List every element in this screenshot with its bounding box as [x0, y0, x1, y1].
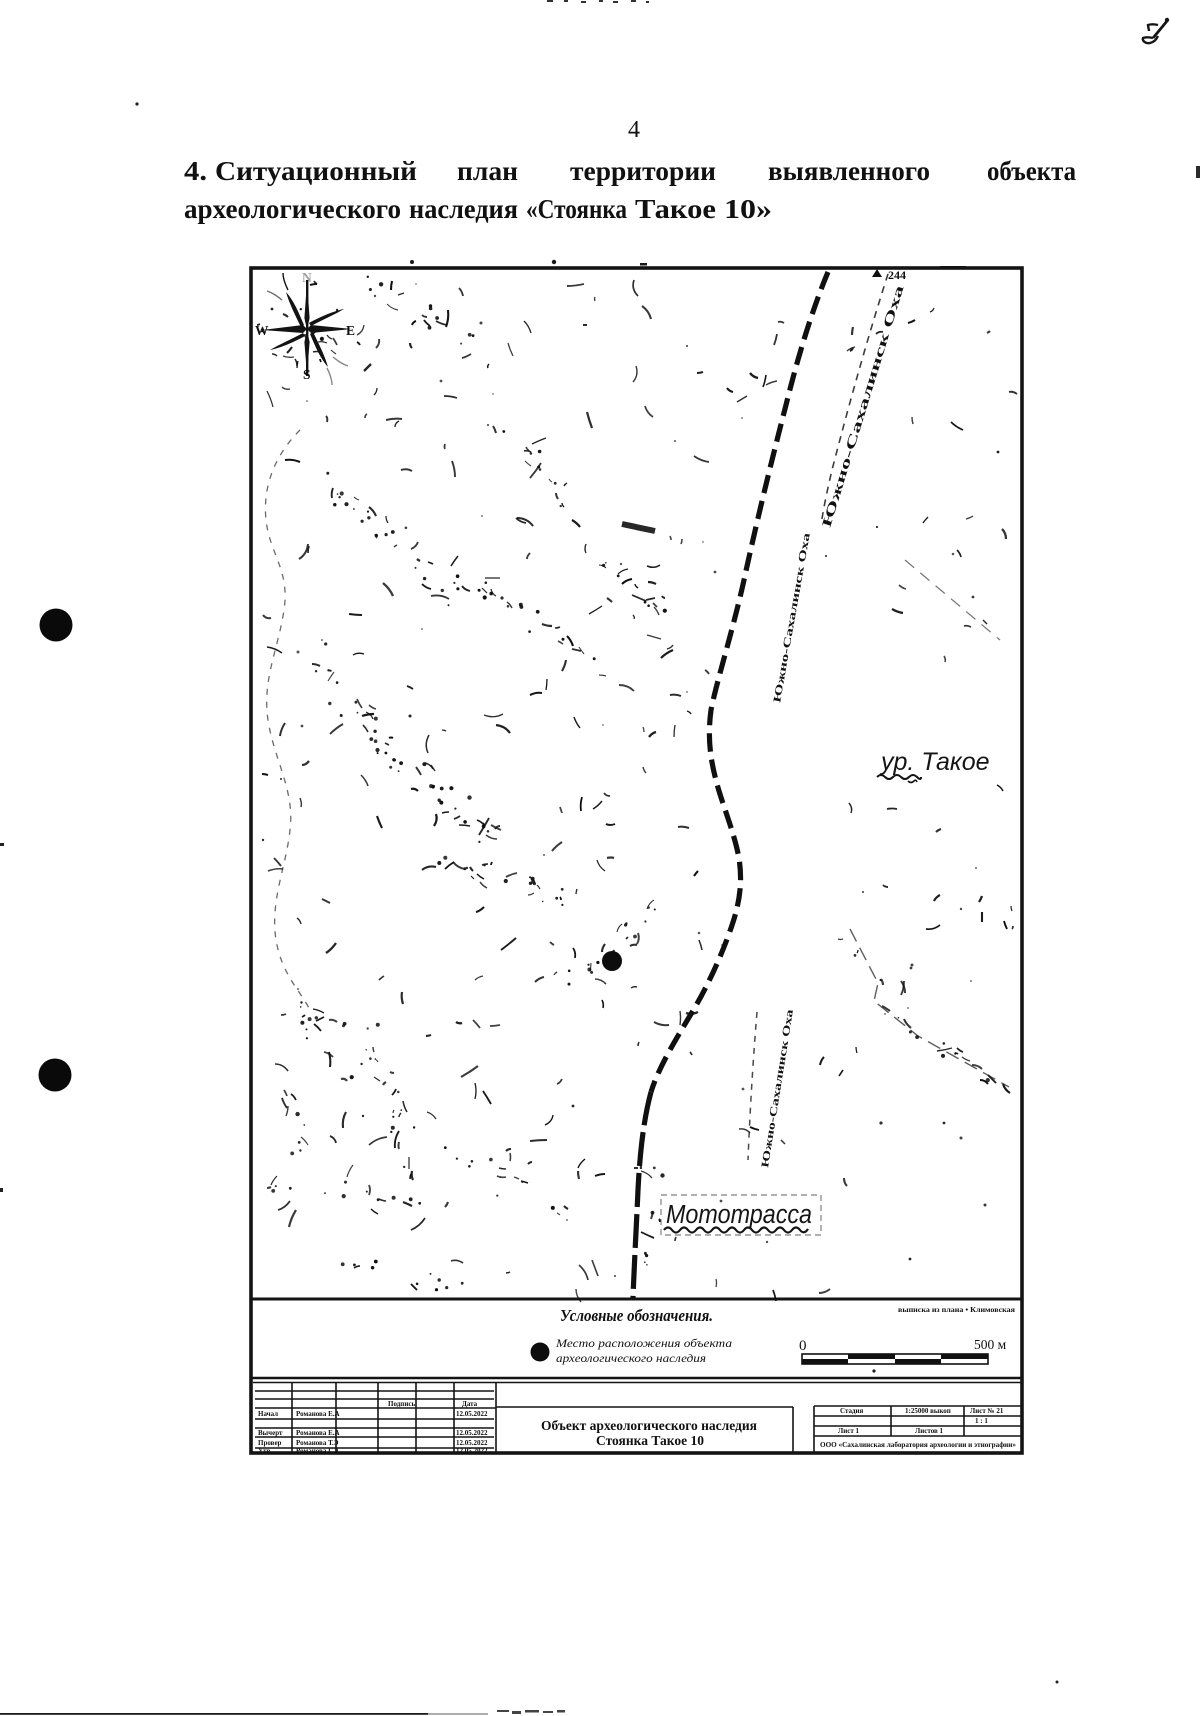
svg-text:ООО «Сахалинская лаборатория а: ООО «Сахалинская лаборатория археологии … [820, 1441, 1017, 1449]
svg-text:4.: 4. [184, 156, 207, 186]
svg-text:археологического: археологического [184, 194, 401, 224]
svg-text:Дата: Дата [462, 1400, 478, 1408]
svg-text:Ситуационный: Ситуационный [215, 156, 417, 186]
svg-text:S: S [303, 367, 311, 382]
svg-text:4: 4 [628, 117, 640, 143]
svg-text:Объект археологического наслед: Объект археологического наследия [541, 1418, 757, 1433]
svg-text:Стадия: Стадия [840, 1407, 864, 1415]
svg-text:Южно-Сахалинск Оха: Южно-Сахалинск Оха [819, 283, 907, 529]
svg-text:1 : 1: 1 : 1 [975, 1417, 988, 1425]
svg-text:Начал: Начал [258, 1410, 278, 1418]
svg-text:1:25000 выкоп: 1:25000 выкоп [905, 1407, 951, 1415]
svg-text:территории: территории [570, 156, 716, 186]
svg-text:10»: 10» [724, 194, 772, 224]
svg-text:Романова Т.Э: Романова Т.Э [296, 1439, 339, 1447]
svg-text:Вычерт: Вычерт [258, 1429, 283, 1437]
svg-text:Лист № 21: Лист № 21 [970, 1407, 1004, 1415]
svg-text:«Стоянка: «Стоянка [526, 194, 627, 224]
svg-text:ур. Такое: ур. Такое [879, 748, 990, 776]
svg-text:Листов 1: Листов 1 [915, 1427, 944, 1435]
svg-text:12.05.2022: 12.05.2022 [456, 1447, 488, 1455]
svg-text:244: 244 [888, 268, 906, 282]
svg-text:Романова Е.А: Романова Е.А [296, 1410, 340, 1418]
svg-text:Такое: Такое [635, 194, 716, 224]
svg-text:0: 0 [799, 1338, 807, 1354]
svg-text:Лист 1: Лист 1 [838, 1427, 860, 1435]
svg-text:Романова Г.Э: Романова Г.Э [296, 1447, 338, 1455]
svg-text:выписка из плана • Климовская: выписка из плана • Климовская [898, 1305, 1015, 1314]
svg-text:Романова Е.А: Романова Е.А [296, 1429, 340, 1437]
svg-text:Утв: Утв [258, 1447, 271, 1455]
svg-text:выявленного: выявленного [768, 156, 930, 186]
svg-text:Подпись: Подпись [388, 1400, 415, 1408]
svg-text:Южно-Сахалинск Оха: Южно-Сахалинск Оха [772, 531, 813, 703]
svg-text:объекта: объекта [987, 156, 1076, 186]
svg-text:план: план [457, 156, 518, 186]
svg-text:Стоянка Такое 10: Стоянка Такое 10 [596, 1433, 704, 1448]
svg-text:12.05.2022: 12.05.2022 [456, 1429, 488, 1437]
svg-text:12.05.2022: 12.05.2022 [456, 1410, 488, 1418]
svg-text:Южно-Сахалинск Оха: Южно-Сахалинск Оха [760, 1008, 796, 1169]
svg-text:Мототрасса: Мототрасса [666, 1201, 812, 1229]
svg-text:N: N [302, 270, 312, 285]
svg-text:W: W [255, 323, 269, 338]
svg-text:наследия: наследия [409, 194, 518, 224]
svg-text:Условные обозначения.: Условные обозначения. [560, 1306, 713, 1325]
svg-text:500 м: 500 м [974, 1337, 1007, 1352]
svg-text:Провер: Провер [258, 1439, 282, 1447]
svg-text:E: E [346, 323, 355, 338]
svg-text:археологического наследия: археологического наследия [556, 1351, 706, 1365]
svg-text:12.05.2022: 12.05.2022 [456, 1439, 488, 1447]
svg-text:Место расположения объекта: Место расположения объекта [555, 1336, 732, 1350]
